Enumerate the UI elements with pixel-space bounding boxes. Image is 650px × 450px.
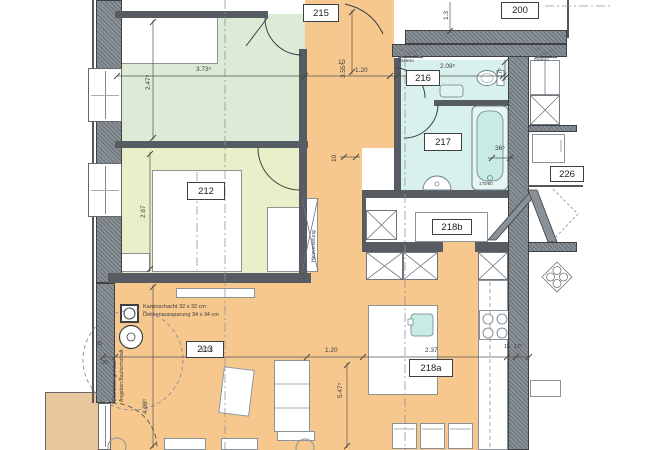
cooktop-226 — [542, 262, 572, 292]
room-label-218a: 218a — [409, 359, 453, 377]
dim-text: 17⁵ — [514, 345, 522, 351]
dim-text: 15 — [504, 345, 510, 351]
wall-segment — [405, 30, 567, 44]
wall-segment — [394, 58, 401, 197]
chimney-shaft — [120, 304, 139, 323]
room-label-217: 217 — [424, 133, 462, 151]
cupboard-226 — [530, 60, 560, 95]
wardrobe-212 — [267, 207, 300, 272]
dim-text: 2.47⁵ — [146, 75, 153, 90]
annotation-ceiling-recess: Deckenaussparung 34 x 34 cm — [143, 312, 219, 319]
dim-text: 10 — [332, 155, 339, 162]
fridge-226 — [532, 134, 565, 163]
wall-edge — [567, 0, 569, 38]
cooktop-218a — [479, 310, 509, 340]
sideboard-213 — [176, 288, 255, 298]
balcony-door — [98, 403, 111, 450]
closet-niche — [366, 210, 397, 240]
closet-hall-1 — [366, 252, 403, 280]
annotation-elektro-right: Elektro — [534, 58, 549, 64]
dim-text: 5.47⁵ — [338, 383, 345, 398]
floor-corridor-mid — [305, 60, 395, 148]
neighbor-table — [530, 380, 561, 397]
dashed-cabinets-226 — [553, 189, 578, 240]
dim-text: 1.20 — [355, 68, 368, 75]
closet-kitchen — [478, 252, 508, 280]
chair-left-1 — [164, 438, 206, 450]
armchair-213 — [218, 366, 254, 416]
dim-text: 1.20 — [325, 348, 338, 355]
window-2 — [88, 163, 122, 217]
wall-segment — [362, 242, 443, 252]
nightstand-212 — [120, 253, 150, 272]
room-label-212: 212 — [187, 182, 225, 200]
dim-text: 1.3 — [444, 11, 451, 20]
dim-text: 25 — [96, 342, 102, 348]
dim-text: 3.73⁵ — [196, 67, 211, 74]
dining-chair-1 — [392, 423, 417, 449]
room-label-200: 200 — [501, 2, 539, 19]
wall-segment — [108, 273, 311, 283]
annotation-cheminee: Cheminée gemäss Angaben Bauherrschaft — [112, 349, 125, 402]
sofa-213 — [274, 360, 310, 432]
wall-segment — [299, 148, 307, 274]
dim-text: 20 — [102, 361, 108, 367]
floor-balcony — [45, 392, 98, 450]
annotation-heating: Heizverteilung — [311, 230, 318, 262]
annotation-chimney-shaft: Kaminschacht 32 x 32 cm — [143, 304, 206, 311]
wall-segment — [299, 49, 307, 148]
dim-text-tub: 170/80 — [479, 182, 493, 187]
kitchen-counter-218a — [478, 280, 508, 450]
dim-text: 17⁵ — [498, 68, 505, 78]
sofa-ottoman — [277, 431, 315, 441]
dim-text: 4.98⁵ — [143, 399, 150, 414]
wall-segment — [434, 100, 508, 106]
chair-left-2 — [221, 438, 258, 450]
dim-text: 36⁵ — [495, 146, 505, 153]
room-label-216: 216 — [406, 70, 440, 86]
dim-text: 2.37 — [425, 348, 438, 355]
closet-hall-2 — [403, 252, 438, 280]
floor-plan: 215 200 216 217 226 212 218b 213 218a 3.… — [0, 0, 650, 450]
window-1 — [88, 68, 122, 122]
room-label-218b: 218b — [432, 219, 472, 235]
wall-segment — [528, 242, 577, 252]
wall-segment — [528, 125, 577, 132]
dim-text: 3.71 — [200, 348, 213, 355]
room-label-215: 215 — [303, 4, 339, 22]
closet-226 — [530, 95, 560, 125]
dim-text: 2.09⁵ — [440, 64, 455, 71]
wall-segment — [115, 141, 308, 148]
floor-door-gap — [443, 242, 475, 254]
bed-top-room — [118, 17, 218, 64]
dim-text: 2.67 — [141, 205, 148, 218]
annotation-elektro-left: Elektro — [399, 59, 414, 65]
wall-segment — [475, 242, 510, 252]
wall-edge — [528, 185, 583, 187]
dim-text: 10 — [338, 60, 345, 67]
dining-chair-2 — [420, 423, 445, 449]
wall-segment — [115, 11, 268, 18]
wall-structural — [508, 53, 529, 450]
wall-segment — [392, 44, 567, 57]
wall-segment — [362, 190, 508, 198]
room-label-226: 226 — [550, 166, 584, 182]
dining-chair-3 — [448, 423, 473, 449]
